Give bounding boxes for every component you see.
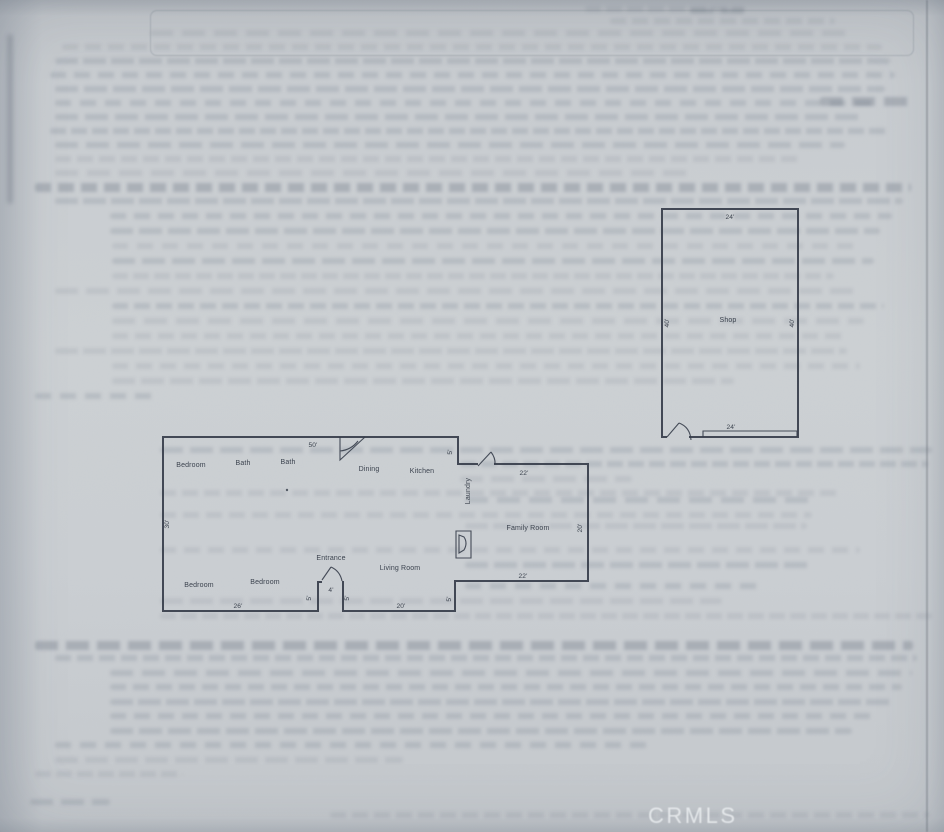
room-label-laundry: Laundry <box>465 477 472 504</box>
shop-dim-right: 40' <box>789 318 796 327</box>
dim-entrance-right: 5' <box>344 595 351 600</box>
room-label-bedroom-3: Bedroom <box>250 579 279 586</box>
shop-door-swing <box>667 423 691 440</box>
dim-family-bottom: 22' <box>518 573 527 580</box>
floor-plan: Shop 24' 40' 40' 24' Bedroom Bath Bath D… <box>0 0 944 832</box>
room-label-kitchen: Kitchen <box>410 468 434 475</box>
corner-fireplace <box>340 437 365 460</box>
entrance-door-swing <box>322 567 342 581</box>
room-label-bedroom-2: Bedroom <box>184 582 213 589</box>
scanned-document-page: { "watermark": "CRMLS", "floorplan": { "… <box>0 0 944 832</box>
room-label-family-room: Family Room <box>507 525 550 532</box>
dim-kitchen-jog: 5' <box>447 449 454 454</box>
dim-bottom-left-width: 26' <box>233 603 242 610</box>
shop-label: Shop <box>720 317 737 324</box>
crmls-watermark: CRMLS <box>648 803 738 829</box>
shop-building: Shop 24' 40' 40' 24' <box>662 209 798 440</box>
family-room-fireplace <box>456 531 471 558</box>
dim-entrance-width: 4' <box>328 587 333 594</box>
main-house: Bedroom Bath Bath Dining Kitchen Laundry… <box>163 437 588 611</box>
room-label-bath-2: Bath <box>281 459 296 466</box>
room-label-entrance: Entrance <box>316 555 345 562</box>
plan-dot <box>286 489 288 491</box>
room-label-dining: Dining <box>359 466 380 473</box>
room-label-bath-1: Bath <box>236 460 251 467</box>
room-label-bedroom-1: Bedroom <box>176 462 205 469</box>
room-label-living-room: Living Room <box>380 565 421 572</box>
shop-dim-left: 40' <box>664 318 671 327</box>
shop-dim-top: 24' <box>725 214 734 221</box>
dim-bottom-mid-width: 20' <box>396 603 405 610</box>
dim-family-right: 20' <box>577 523 584 532</box>
dim-top-width: 50' <box>308 442 317 449</box>
shop-dim-bottom: 24' <box>726 424 735 431</box>
dim-family-bottom-jog: 5' <box>446 596 453 601</box>
dim-family-top: 22' <box>519 470 528 477</box>
dim-left-depth: 30' <box>164 519 171 528</box>
laundry-door-swing <box>478 452 495 466</box>
dim-entrance-left: 5' <box>306 595 313 600</box>
